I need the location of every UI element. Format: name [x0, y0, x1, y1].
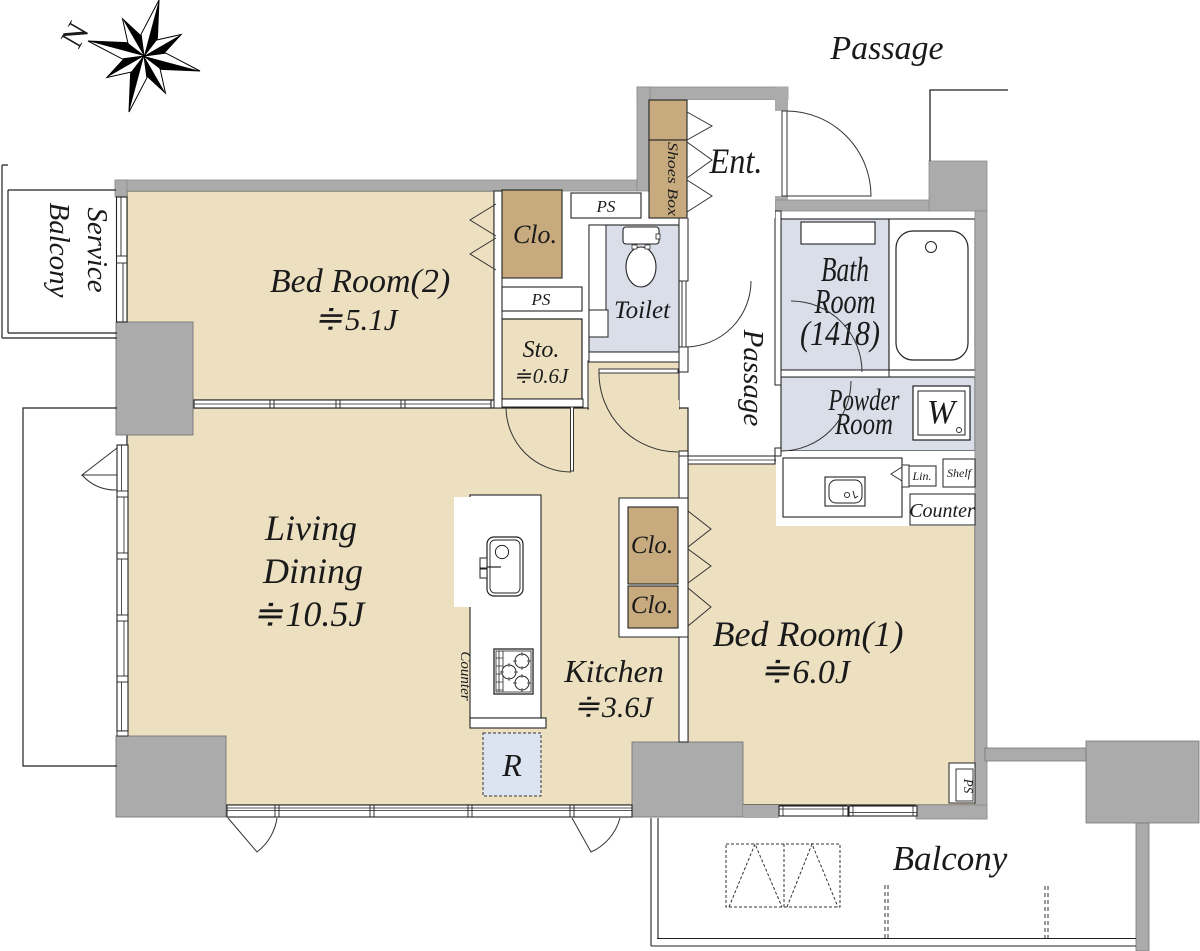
svg-text:Toilet: Toilet	[614, 297, 671, 324]
svg-text:PS: PS	[596, 197, 616, 216]
svg-text:Bed Room(1): Bed Room(1)	[713, 614, 904, 654]
svg-text:Sto.: Sto.	[523, 337, 560, 363]
svg-text:W: W	[927, 394, 958, 431]
svg-text:Dining: Dining	[262, 551, 363, 591]
svg-text:0.6J: 0.6J	[533, 364, 570, 388]
svg-text:Ent.: Ent.	[709, 141, 763, 181]
svg-text:Room: Room	[834, 406, 893, 441]
svg-text:Clo.: Clo.	[631, 592, 673, 619]
svg-text:3.6J: 3.6J	[601, 691, 655, 724]
svg-text:Lin.: Lin.	[911, 469, 931, 483]
svg-text:Bed Room(2): Bed Room(2)	[270, 263, 450, 300]
svg-text:Passage: Passage	[737, 329, 769, 427]
svg-text:5.1J: 5.1J	[345, 302, 399, 337]
svg-text:Shelf: Shelf	[947, 466, 973, 480]
svg-text:Shoes Box: Shoes Box	[664, 142, 680, 216]
svg-text:Counter: Counter	[457, 651, 473, 700]
svg-text:R: R	[501, 747, 522, 783]
svg-text:(1418): (1418)	[800, 314, 880, 353]
svg-text:Living: Living	[264, 508, 357, 548]
svg-text:6.0J: 6.0J	[792, 654, 852, 691]
svg-text:10.5J: 10.5J	[285, 594, 366, 634]
svg-text:Passage: Passage	[829, 30, 943, 67]
svg-text:Service: Service	[81, 207, 113, 292]
svg-text:Clo.: Clo.	[513, 220, 557, 249]
svg-text:Kitchen: Kitchen	[563, 653, 664, 689]
svg-text:Counter: Counter	[909, 500, 975, 522]
svg-text:Balcony: Balcony	[43, 202, 75, 297]
svg-text:PS: PS	[531, 290, 551, 309]
svg-text:PS: PS	[961, 778, 976, 794]
svg-text:Balcony: Balcony	[893, 839, 1008, 878]
svg-text:Clo.: Clo.	[631, 532, 673, 559]
